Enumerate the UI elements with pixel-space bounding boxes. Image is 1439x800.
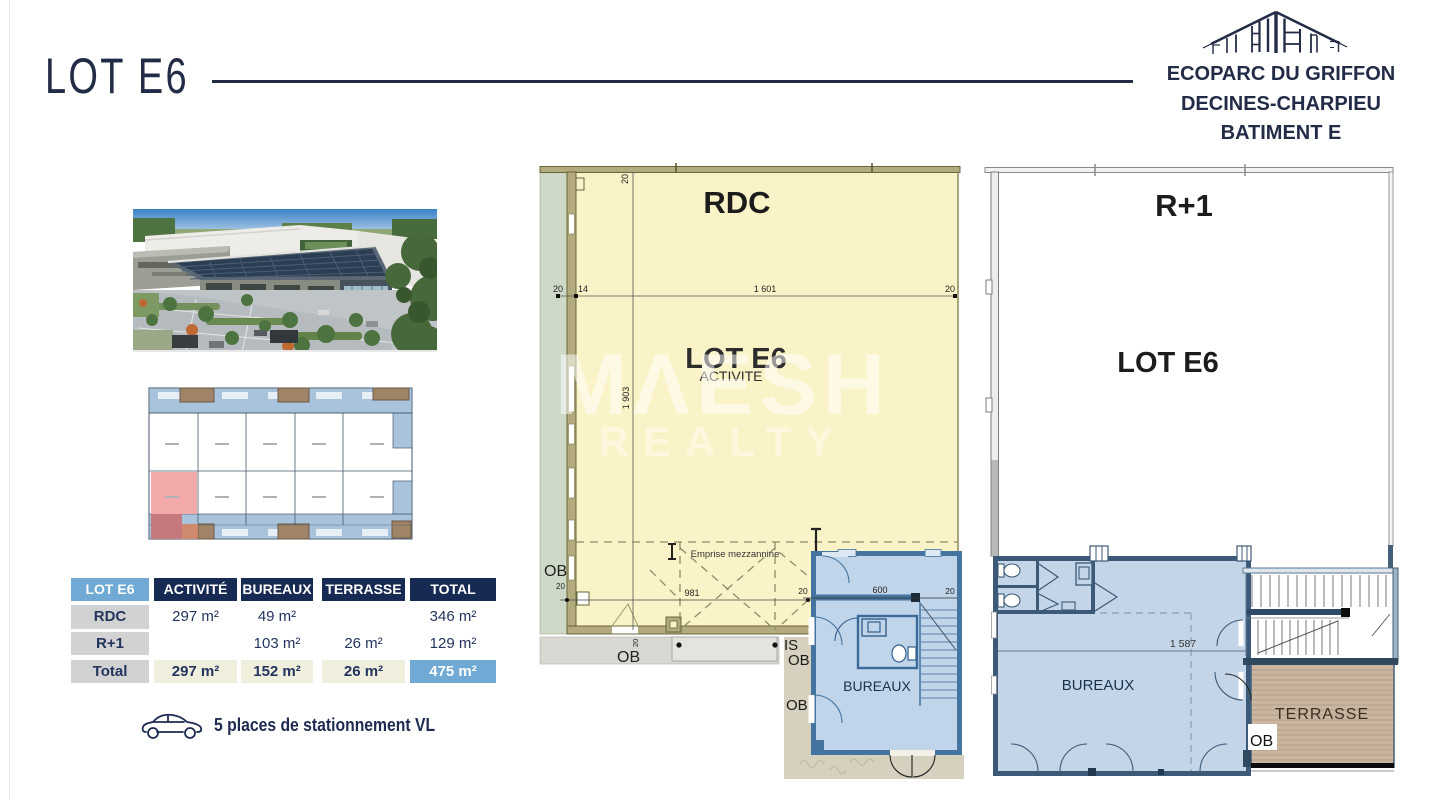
svg-text:OB: OB — [544, 563, 567, 580]
svg-text:600: 600 — [872, 585, 887, 595]
svg-text:20: 20 — [631, 639, 640, 647]
svg-text:Emprise mezzannine: Emprise mezzannine — [691, 549, 780, 560]
svg-text:20: 20 — [945, 586, 955, 596]
svg-text:R+1: R+1 — [1155, 188, 1213, 223]
svg-text:RDC: RDC — [703, 185, 770, 220]
svg-text:BUREAUX: BUREAUX — [843, 678, 911, 694]
svg-text:14: 14 — [578, 284, 588, 294]
svg-text:20: 20 — [556, 582, 565, 591]
svg-text:20: 20 — [798, 586, 808, 596]
svg-text:20: 20 — [620, 174, 630, 184]
svg-text:1 601: 1 601 — [754, 284, 777, 294]
svg-text:981: 981 — [684, 588, 699, 598]
svg-text:OB: OB — [788, 652, 810, 669]
svg-text:OB: OB — [617, 649, 640, 666]
svg-text:20: 20 — [945, 284, 955, 294]
svg-text:LOT E6: LOT E6 — [1117, 347, 1219, 379]
svg-text:BUREAUX: BUREAUX — [1062, 677, 1135, 694]
svg-text:20: 20 — [553, 284, 563, 294]
svg-text:1 587: 1 587 — [1170, 638, 1196, 650]
svg-text:TERRASSE: TERRASSE — [1275, 706, 1369, 723]
svg-text:OB: OB — [1250, 733, 1273, 750]
svg-text:OB: OB — [786, 697, 808, 714]
